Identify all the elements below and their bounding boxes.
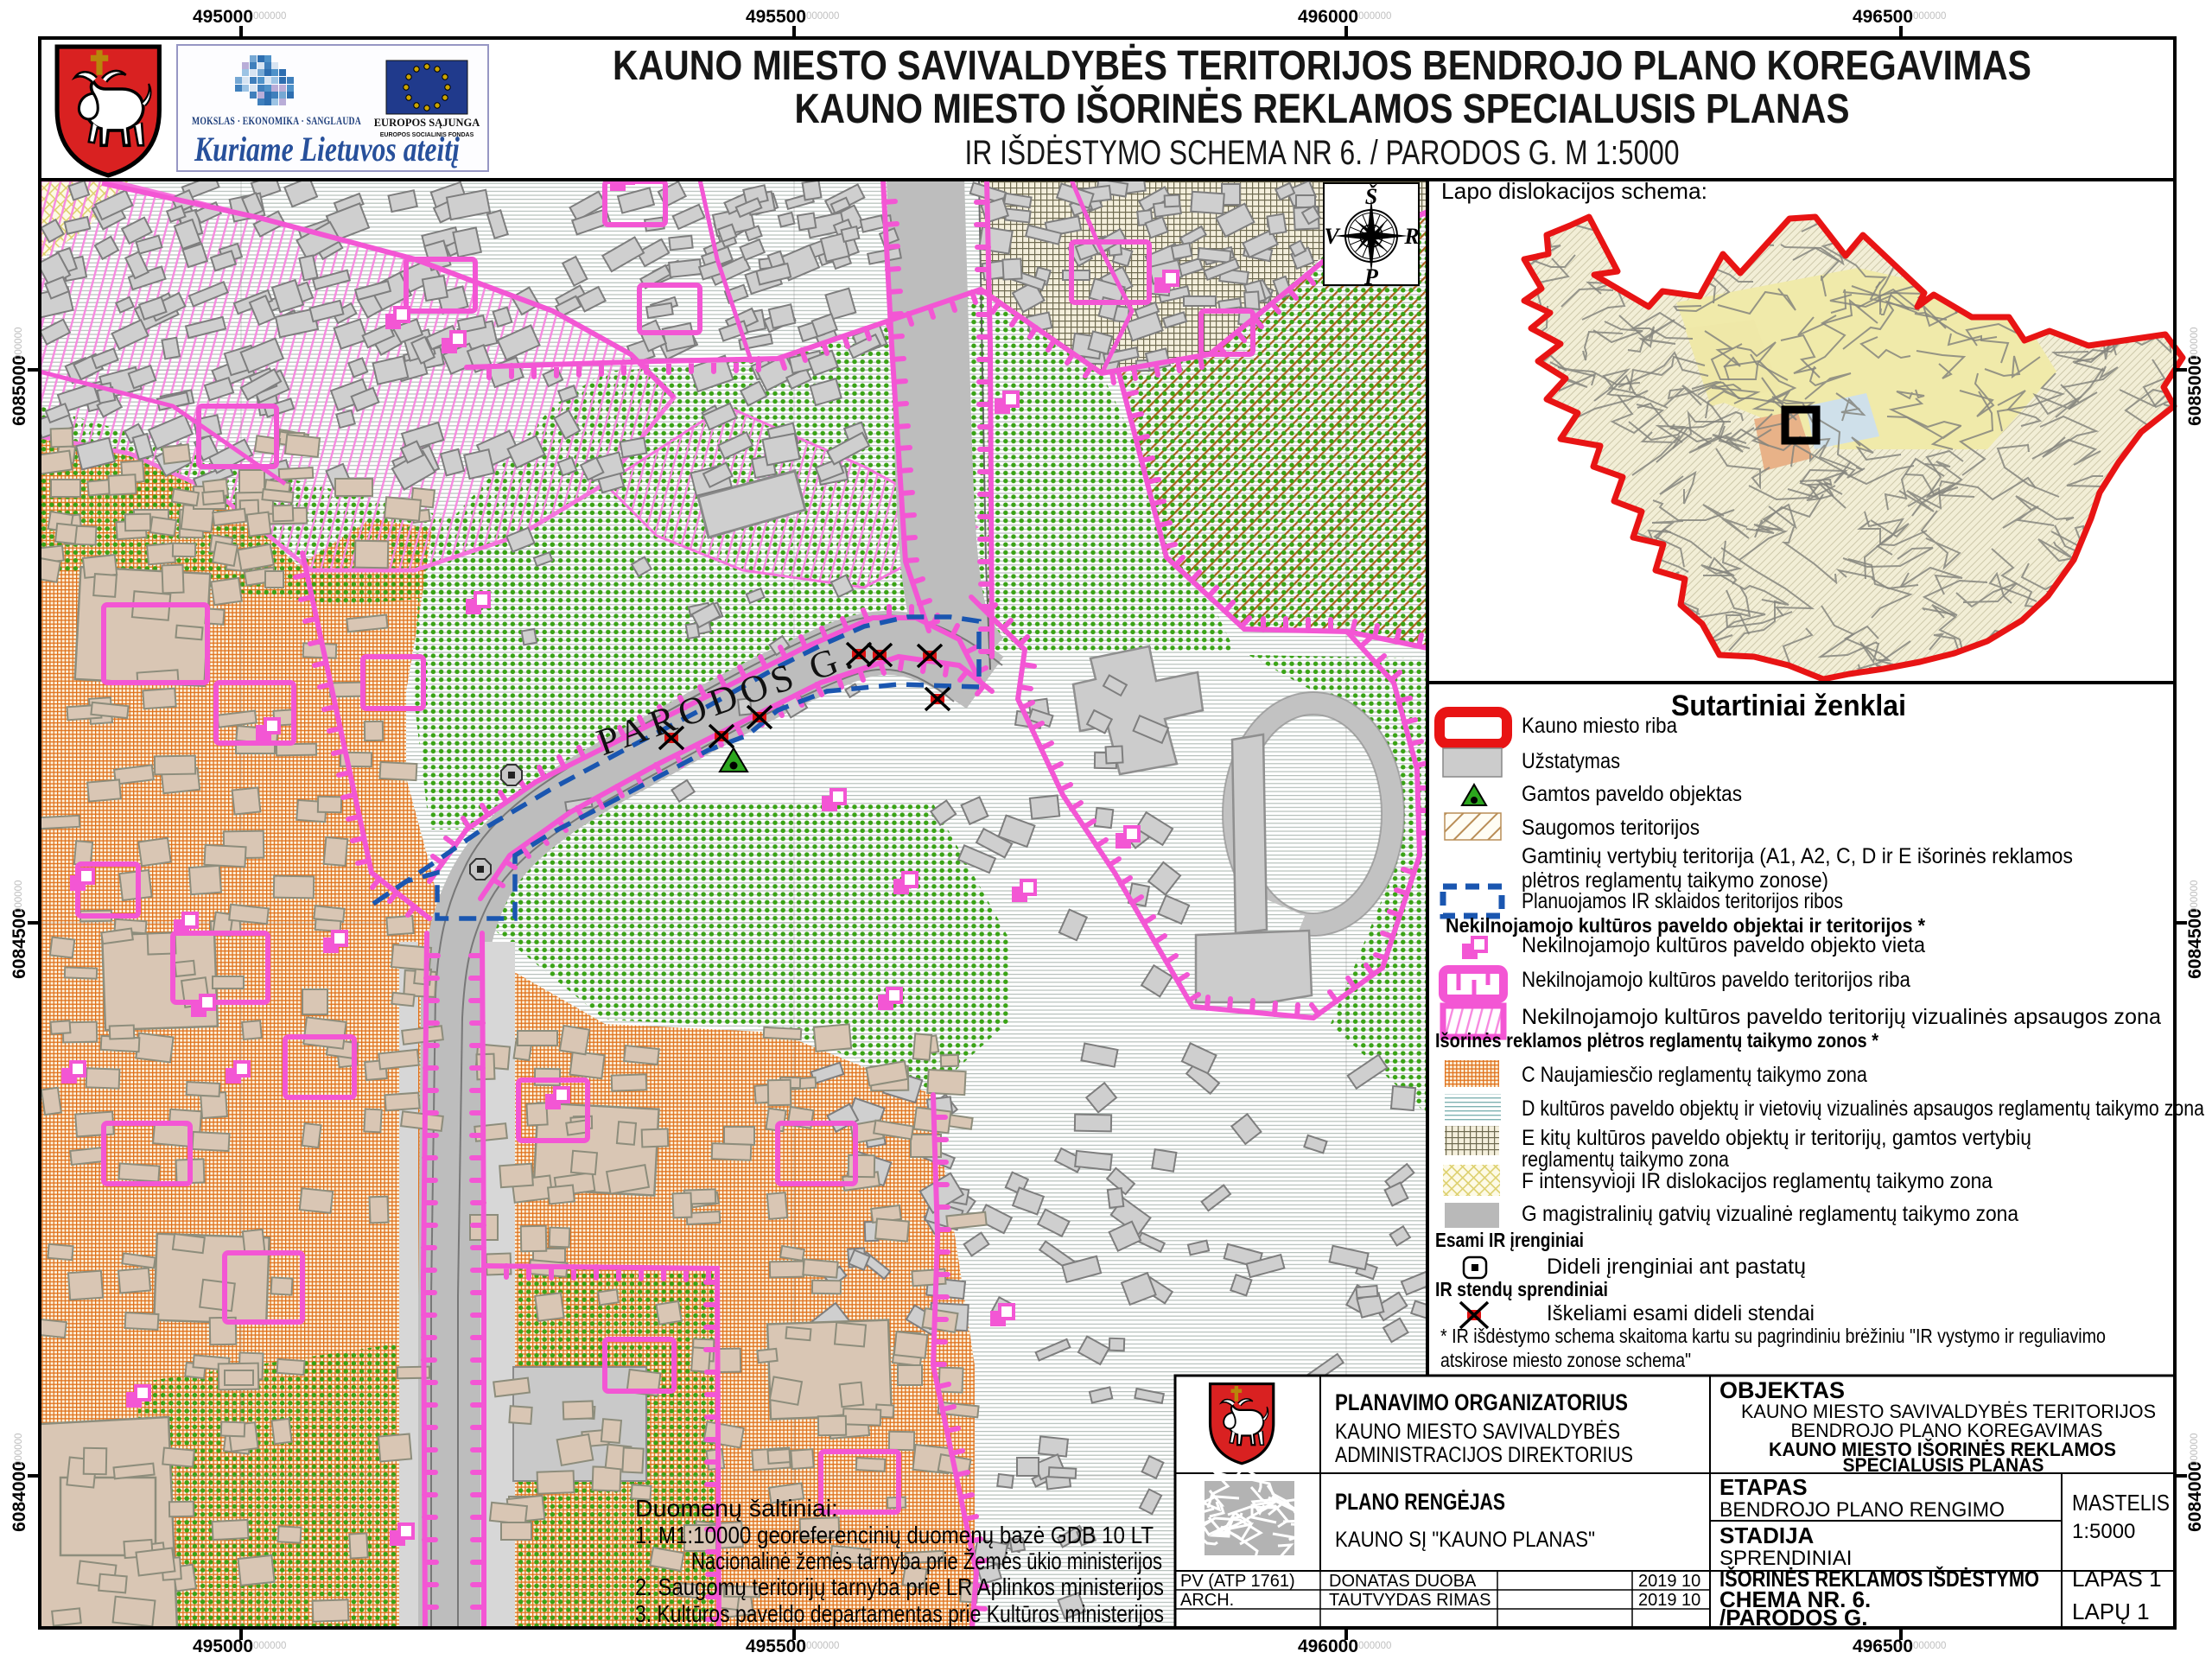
svg-text:KAUNO MIESTO SAVIVALDYBĖS TERI: KAUNO MIESTO SAVIVALDYBĖS TERITORIJOS BE… xyxy=(613,43,2031,89)
svg-text:6084500: 6084500 xyxy=(2185,908,2205,979)
svg-text:Užstatymas: Užstatymas xyxy=(1522,749,1620,773)
svg-text:SPECIALUSIS PLANAS: SPECIALUSIS PLANAS xyxy=(1843,1454,2044,1476)
svg-text:1. M1:10000 georeferencinių du: 1. M1:10000 georeferencinių duomenų bazė… xyxy=(635,1522,1154,1548)
svg-text:Kauno miesto riba: Kauno miesto riba xyxy=(1522,714,1677,738)
svg-text:OBJEKTAS: OBJEKTAS xyxy=(1719,1377,1845,1403)
svg-text:Nekilnojamojo kultūros paveldo: Nekilnojamojo kultūros paveldo teritorij… xyxy=(1522,968,1910,992)
svg-text:000000: 000000 xyxy=(806,11,839,22)
svg-text:000000: 000000 xyxy=(253,1641,286,1651)
svg-text:DONATAS DUOBA: DONATAS DUOBA xyxy=(1329,1572,1477,1591)
svg-text:000000: 000000 xyxy=(2190,327,2200,360)
svg-text:Planuojamos IR sklaidos terito: Planuojamos IR sklaidos teritorijos ribo… xyxy=(1522,889,1843,913)
svg-text:000000: 000000 xyxy=(2190,1433,2200,1466)
svg-text:Dideli įrenginiai ant pastatų: Dideli įrenginiai ant pastatų xyxy=(1547,1255,1806,1279)
svg-text:Kuriame Lietuvos ateitį: Kuriame Lietuvos ateitį xyxy=(194,130,460,168)
svg-text:495000: 495000 xyxy=(193,1637,253,1656)
svg-text:6084500: 6084500 xyxy=(10,908,29,979)
svg-text:Lapo dislokacijos schema:: Lapo dislokacijos schema: xyxy=(1441,178,1707,204)
svg-text:V: V xyxy=(1324,224,1341,249)
svg-text:F intensyvioji IR dislokacijos: F intensyvioji IR dislokacijos reglament… xyxy=(1522,1169,1993,1193)
svg-text:reglamentų taikymo zona: reglamentų taikymo zona xyxy=(1522,1147,1729,1172)
svg-text:ETAPAS: ETAPAS xyxy=(1719,1474,1808,1500)
svg-text:000000: 000000 xyxy=(1358,1641,1391,1651)
svg-text:3. Kultūros paveldo departamen: 3. Kultūros paveldo departamentas prie K… xyxy=(635,1600,1164,1627)
svg-text:IR IŠDĖSTYMO SCHEMA NR 6. /: IR IŠDĖSTYMO SCHEMA NR 6. / PARODOS G. M… xyxy=(965,133,1680,172)
svg-text:PLANAVIMO ORGANIZATORIUS: PLANAVIMO ORGANIZATORIUS xyxy=(1335,1389,1628,1415)
svg-text:6085000: 6085000 xyxy=(10,355,29,426)
svg-text:000000: 000000 xyxy=(14,327,24,360)
svg-text:495000: 495000 xyxy=(193,7,253,27)
svg-text:PLANO RENGĖJAS: PLANO RENGĖJAS xyxy=(1335,1489,1505,1515)
svg-text:000000: 000000 xyxy=(806,1641,839,1651)
svg-text:2019 10: 2019 10 xyxy=(1638,1591,1700,1610)
svg-text:D kultūros paveldo objektų ir: D kultūros paveldo objektų ir vietovių v… xyxy=(1522,1096,2204,1121)
svg-text:000000: 000000 xyxy=(14,880,24,913)
svg-text:Nekilnojamojo kultūros paveldo: Nekilnojamojo kultūros paveldo teritorij… xyxy=(1522,1005,2161,1029)
svg-text:C Naujamiesčio reglamentų taik: C Naujamiesčio reglamentų taikymo zona xyxy=(1522,1063,1867,1087)
svg-text:atskirose miesto zonose schema: atskirose miesto zonose schema" xyxy=(1440,1349,1691,1371)
svg-text:TAUTVYDAS RIMAS: TAUTVYDAS RIMAS xyxy=(1329,1591,1491,1610)
svg-text:MOKSLAS · EKONOMIKA · SANGLAUD: MOKSLAS · EKONOMIKA · SANGLAUDA xyxy=(192,114,361,127)
svg-text:KAUNO MIESTO IŠORINĖS REKLAMOS: KAUNO MIESTO IŠORINĖS REKLAMOS SPECIALUS… xyxy=(795,85,1850,132)
svg-text:MASTELIS: MASTELIS xyxy=(2072,1490,2170,1516)
svg-text:LAPŲ 1: LAPŲ 1 xyxy=(2072,1599,2150,1624)
svg-text:Sutartiniai ženklai: Sutartiniai ženklai xyxy=(1671,690,1906,722)
svg-text:000000: 000000 xyxy=(1913,1641,1946,1651)
svg-text:000000: 000000 xyxy=(14,1433,24,1466)
svg-text:495500: 495500 xyxy=(746,7,806,27)
svg-text:6084000: 6084000 xyxy=(2185,1461,2205,1532)
svg-text:STADIJA: STADIJA xyxy=(1719,1522,1815,1548)
svg-text:Nacionalinė žemės tarnyba prie: Nacionalinė žemės tarnyba prie Žemės ūki… xyxy=(691,1548,1162,1574)
svg-text:Išorinės reklamos plėtros regl: Išorinės reklamos plėtros reglamentų tai… xyxy=(1435,1029,1878,1052)
svg-text:Esami IR įrenginiai: Esami IR įrenginiai xyxy=(1435,1229,1584,1251)
svg-text:000000: 000000 xyxy=(1913,11,1946,22)
svg-text:LAPAS 1: LAPAS 1 xyxy=(2072,1566,2162,1592)
svg-text:ADMINISTRACIJOS DIREKTORIUS: ADMINISTRACIJOS DIREKTORIUS xyxy=(1335,1443,1633,1467)
svg-text:000000: 000000 xyxy=(253,11,286,22)
svg-text:2019 10: 2019 10 xyxy=(1638,1572,1700,1591)
svg-text:496000: 496000 xyxy=(1298,1637,1358,1656)
svg-text:* IR išdėstymo schema skaitoma: * IR išdėstymo schema skaitoma kartu su … xyxy=(1440,1325,2106,1347)
svg-text:BENDROJO PLANO RENGIMO: BENDROJO PLANO RENGIMO xyxy=(1719,1498,2005,1522)
svg-text:Duomenų šaltiniai:: Duomenų šaltiniai: xyxy=(635,1495,838,1522)
svg-text:G magistralinių gatvių vizuali: G magistralinių gatvių vizualinė reglame… xyxy=(1522,1202,2018,1226)
svg-text:R: R xyxy=(1403,224,1419,249)
svg-text:P: P xyxy=(1363,264,1379,289)
svg-text:2. Saugomų teritorijų tarnyba: 2. Saugomų teritorijų tarnyba prie LR Ap… xyxy=(635,1573,1164,1600)
svg-text:6085000: 6085000 xyxy=(2185,355,2205,426)
svg-text:PV (ATP 1761): PV (ATP 1761) xyxy=(1180,1572,1295,1591)
svg-text:Gamtos paveldo objektas: Gamtos paveldo objektas xyxy=(1522,782,1742,806)
svg-text:KAUNO SĮ "KAUNO PLANAS": KAUNO SĮ "KAUNO PLANAS" xyxy=(1335,1528,1595,1552)
svg-text:Nekilnojamojo kultūros paveldo: Nekilnojamojo kultūros paveldo objekto v… xyxy=(1522,933,1925,957)
svg-text:Š: Š xyxy=(1365,184,1377,209)
svg-text:496500: 496500 xyxy=(1853,1637,1913,1656)
svg-text:1:5000: 1:5000 xyxy=(2072,1520,2135,1543)
svg-text:ARCH.: ARCH. xyxy=(1180,1591,1234,1610)
svg-text:Saugomos teritorijos: Saugomos teritorijos xyxy=(1522,816,1700,840)
svg-text:496500: 496500 xyxy=(1853,7,1913,27)
svg-text:Iškeliami esami dideli stendai: Iškeliami esami dideli stendai xyxy=(1547,1301,1815,1325)
svg-text:000000: 000000 xyxy=(2190,880,2200,913)
svg-text:495500: 495500 xyxy=(746,1637,806,1656)
svg-text:EUROPOS SĄJUNGA: EUROPOS SĄJUNGA xyxy=(374,117,480,129)
svg-text:KAUNO MIESTO SAVIVALDYBĖS: KAUNO MIESTO SAVIVALDYBĖS xyxy=(1335,1419,1620,1444)
svg-text:IR stendų sprendiniai: IR stendų sprendiniai xyxy=(1435,1278,1608,1300)
svg-text:496000: 496000 xyxy=(1298,7,1358,27)
svg-text:Gamtinių vertybių teritorija (: Gamtinių vertybių teritorija (A1, A2, C,… xyxy=(1522,844,2073,868)
svg-text:000000: 000000 xyxy=(1358,11,1391,22)
svg-text:6084000: 6084000 xyxy=(10,1461,29,1532)
svg-text:E kitų kultūros paveldo objekt: E kitų kultūros paveldo objektų ir terit… xyxy=(1522,1126,2031,1150)
